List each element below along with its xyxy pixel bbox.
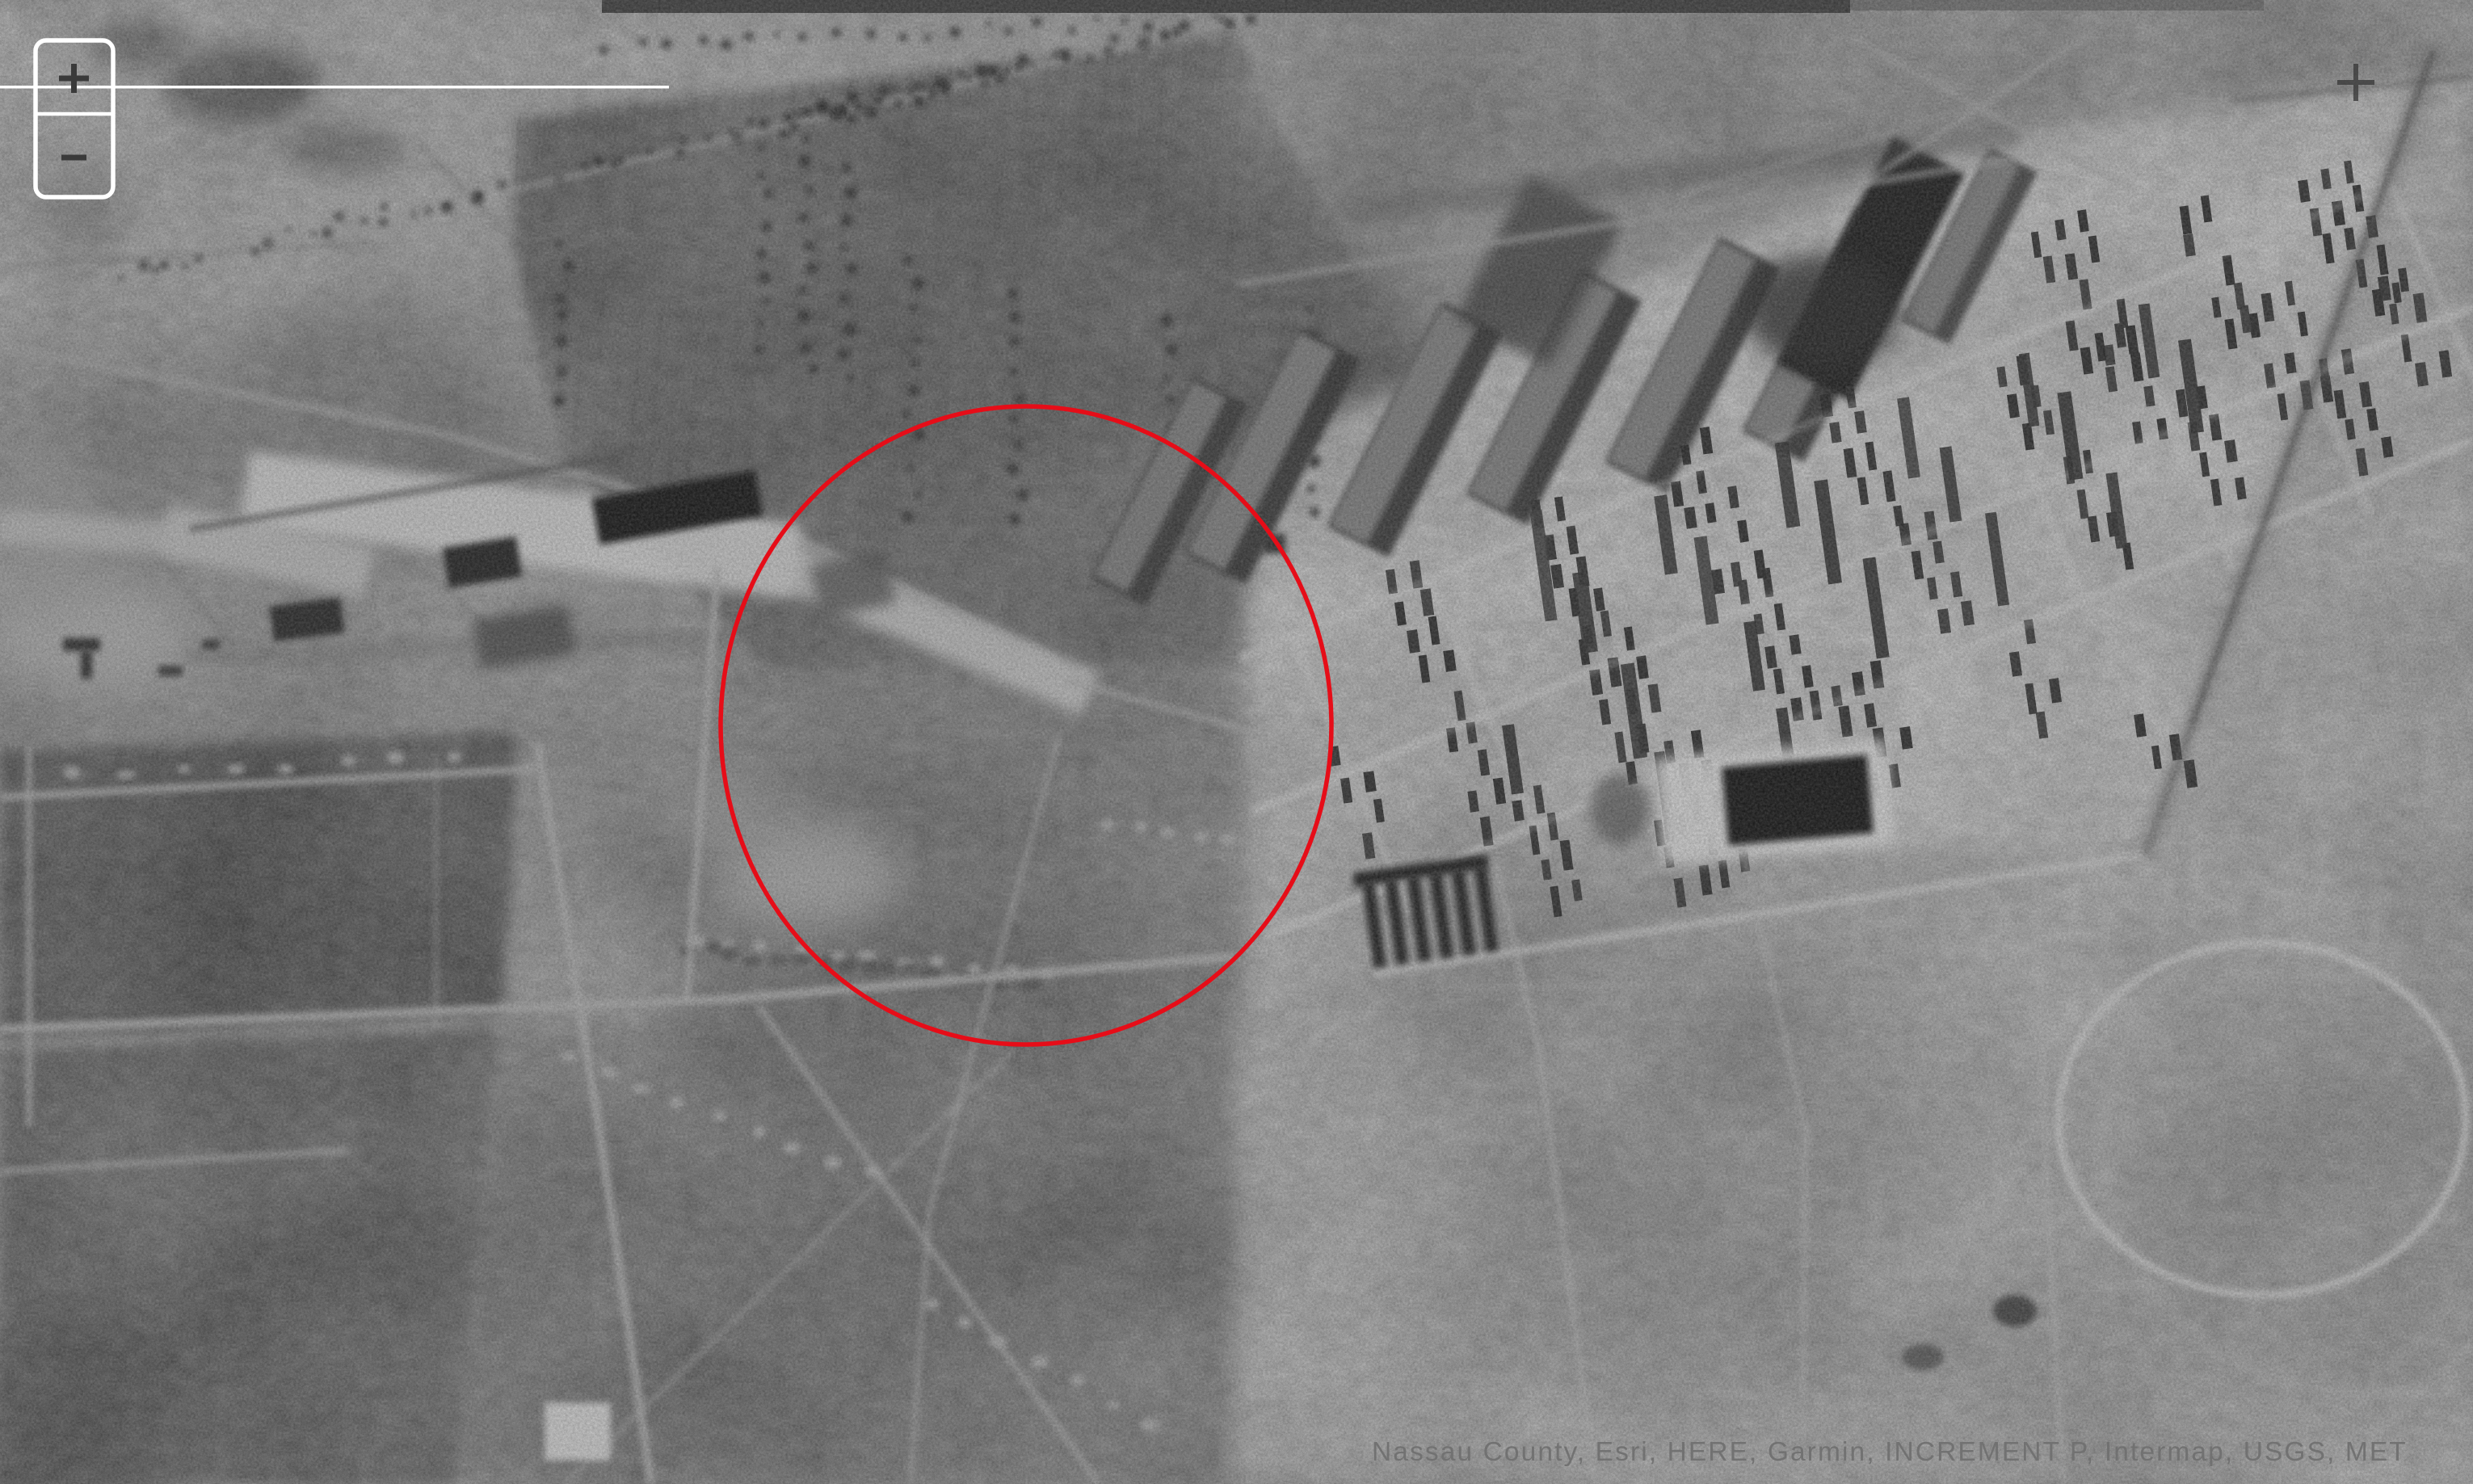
- svg-text:Nassau County, Esri, HERE, Gar: Nassau County, Esri, HERE, Garmin, INCRE…: [1372, 1437, 2408, 1467]
